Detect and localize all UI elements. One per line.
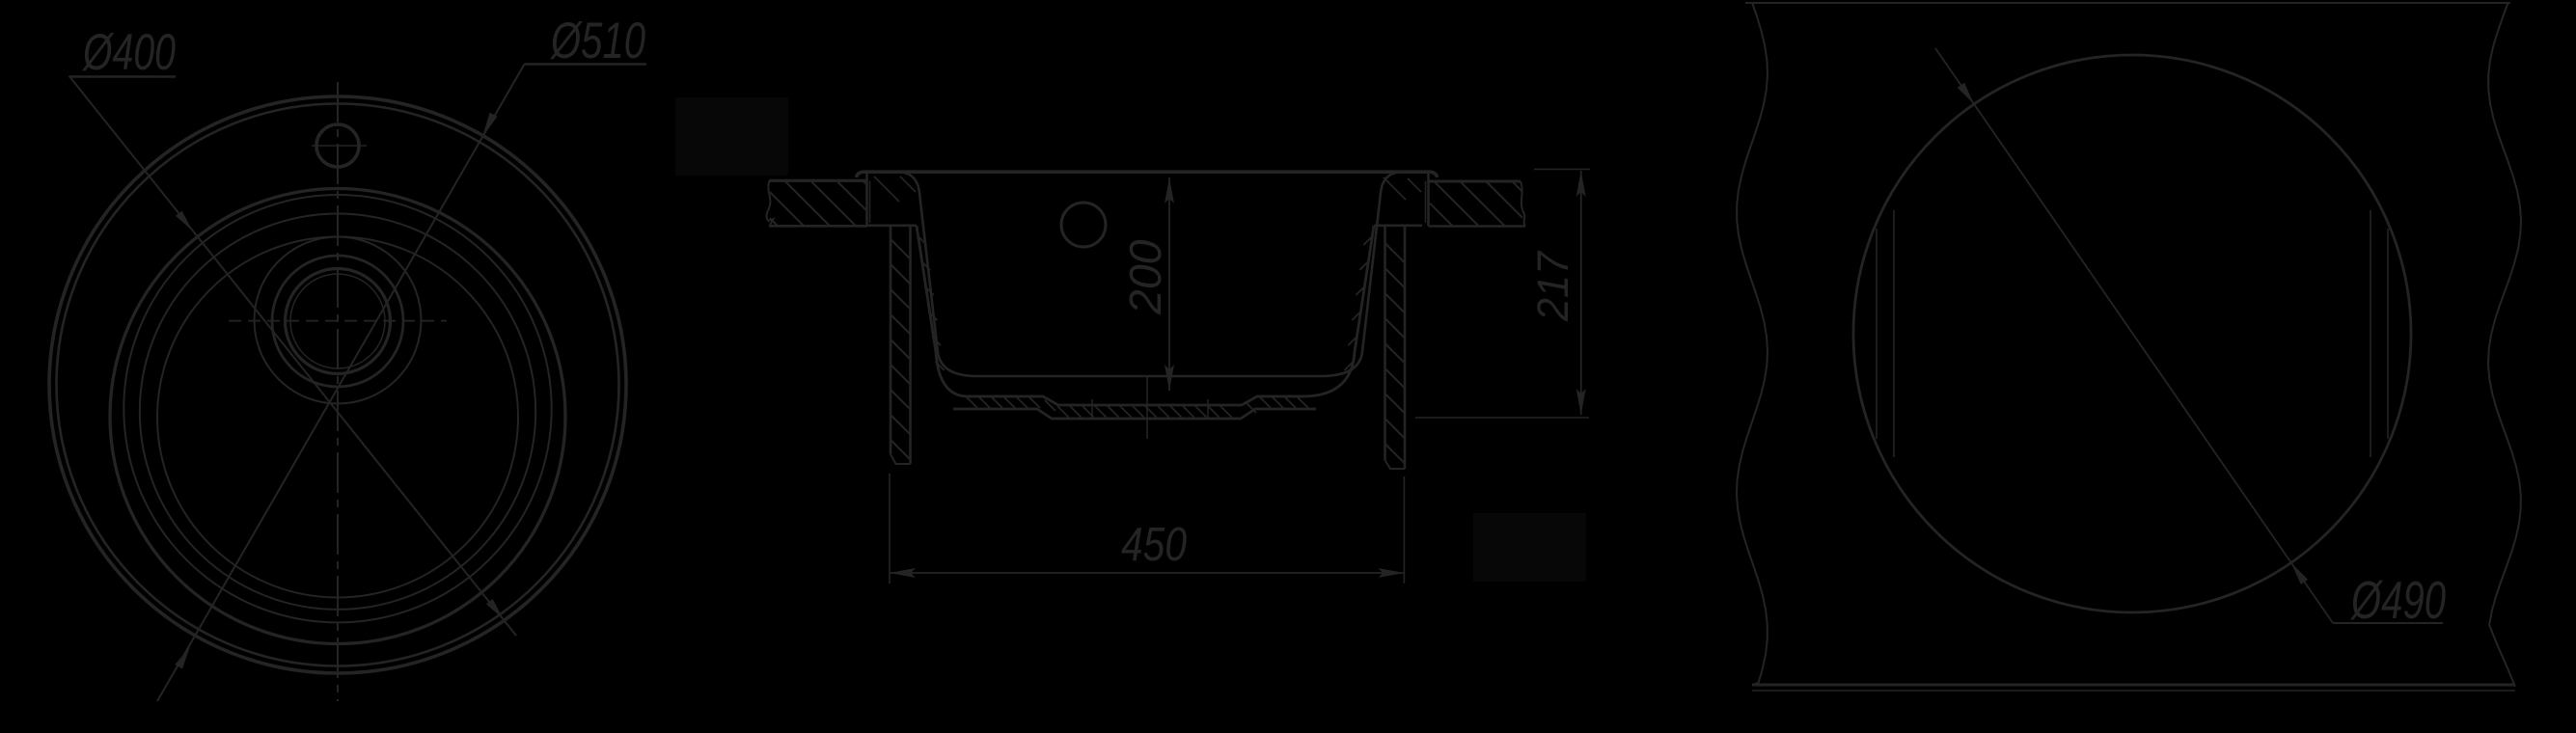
svg-text:217: 217 (1528, 250, 1577, 322)
svg-text:Ø490: Ø490 (2350, 570, 2447, 630)
svg-text:Ø510: Ø510 (549, 13, 645, 69)
svg-text:450: 450 (1121, 519, 1187, 571)
svg-text:200: 200 (1120, 239, 1170, 315)
svg-text:Ø400: Ø400 (82, 24, 177, 81)
